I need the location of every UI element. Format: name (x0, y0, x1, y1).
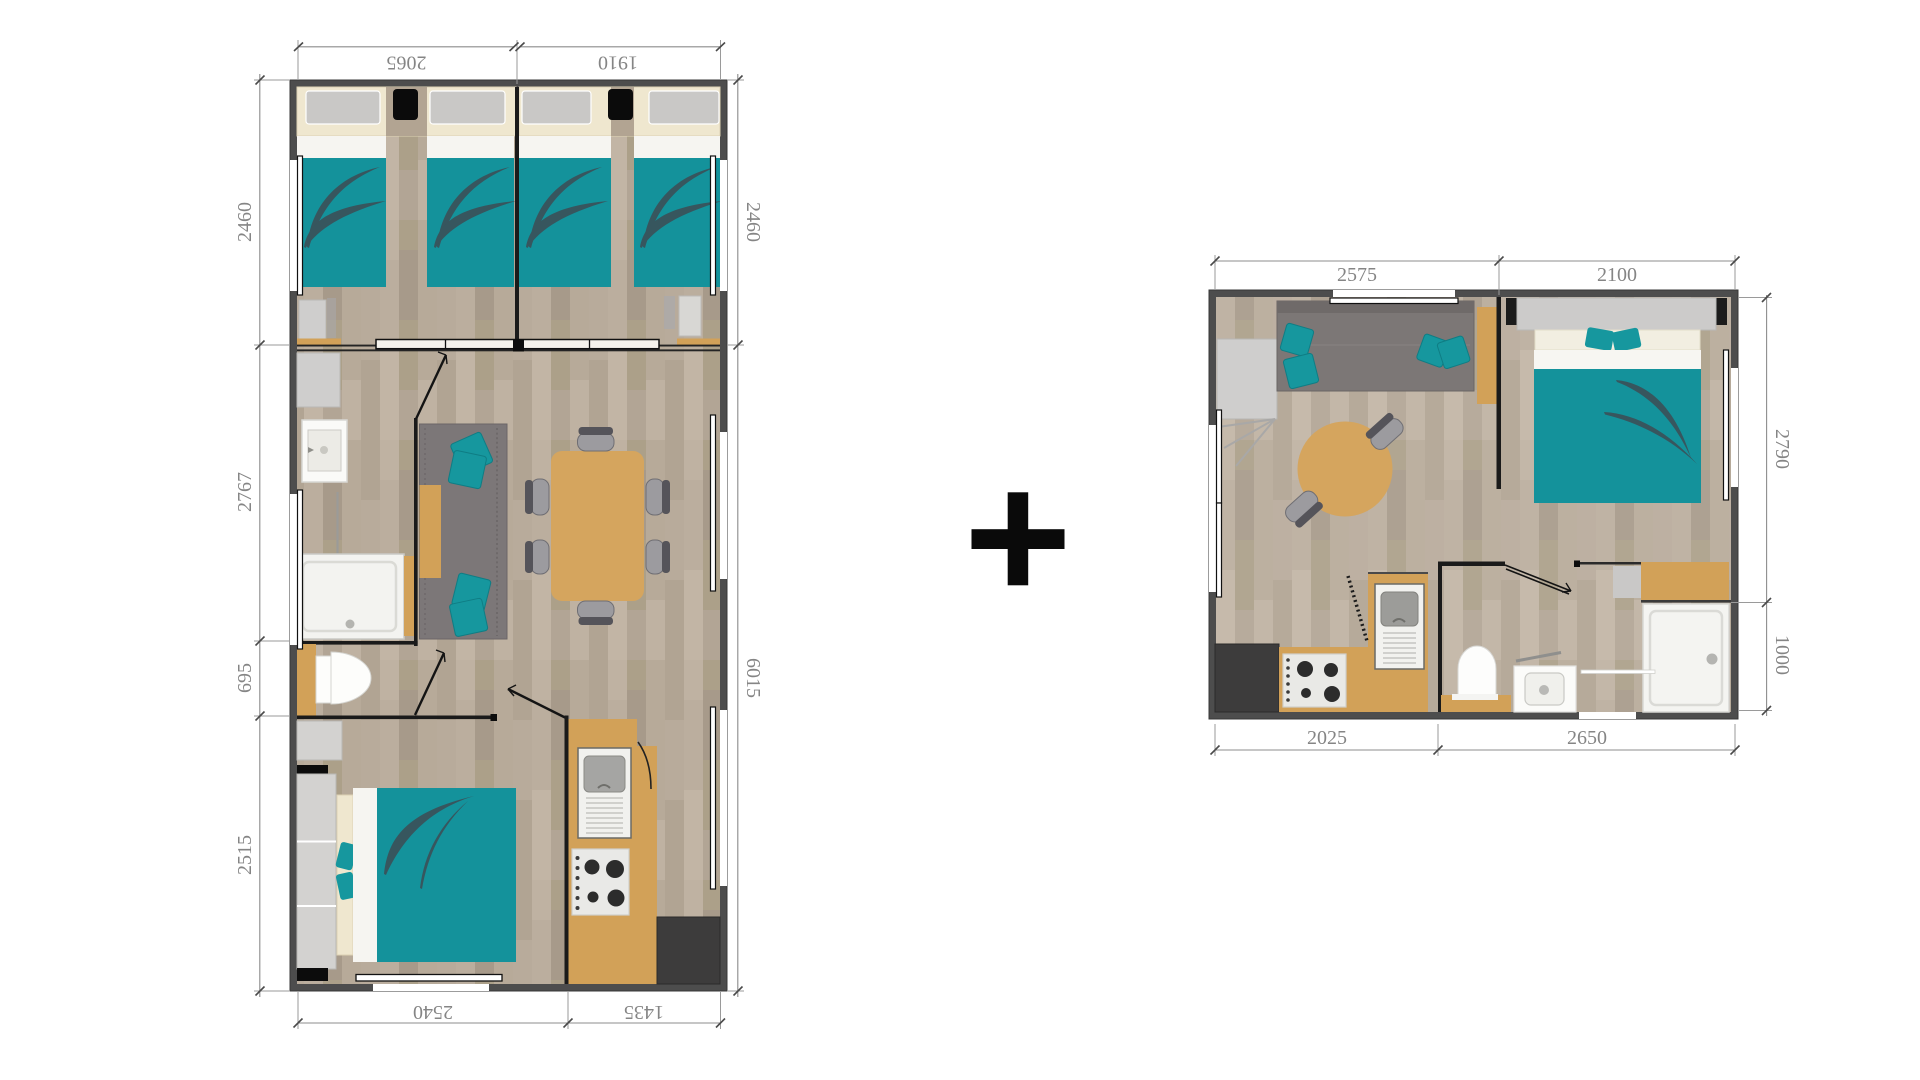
svg-text:2767: 2767 (234, 472, 256, 512)
svg-text:2460: 2460 (234, 202, 256, 242)
svg-text:2025: 2025 (1307, 727, 1347, 749)
svg-text:2575: 2575 (1337, 264, 1377, 286)
svg-text:6015: 6015 (742, 658, 764, 698)
svg-text:2065: 2065 (387, 52, 427, 74)
svg-text:1000: 1000 (1771, 635, 1793, 675)
svg-text:2460: 2460 (742, 202, 764, 242)
svg-text:2100: 2100 (1597, 264, 1637, 286)
svg-text:2515: 2515 (234, 835, 256, 875)
svg-text:695: 695 (234, 663, 256, 693)
svg-text:2790: 2790 (1771, 429, 1793, 469)
svg-text:2540: 2540 (413, 1001, 453, 1023)
svg-text:1910: 1910 (598, 52, 638, 74)
svg-text:1435: 1435 (624, 1001, 664, 1023)
svg-text:2650: 2650 (1567, 727, 1607, 749)
